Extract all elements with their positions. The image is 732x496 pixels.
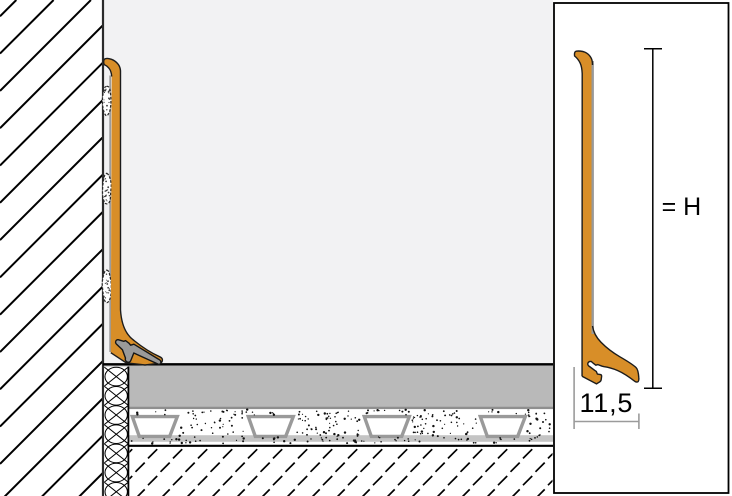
svg-text:= H: = H xyxy=(662,193,702,221)
svg-text:11,5: 11,5 xyxy=(580,388,634,418)
